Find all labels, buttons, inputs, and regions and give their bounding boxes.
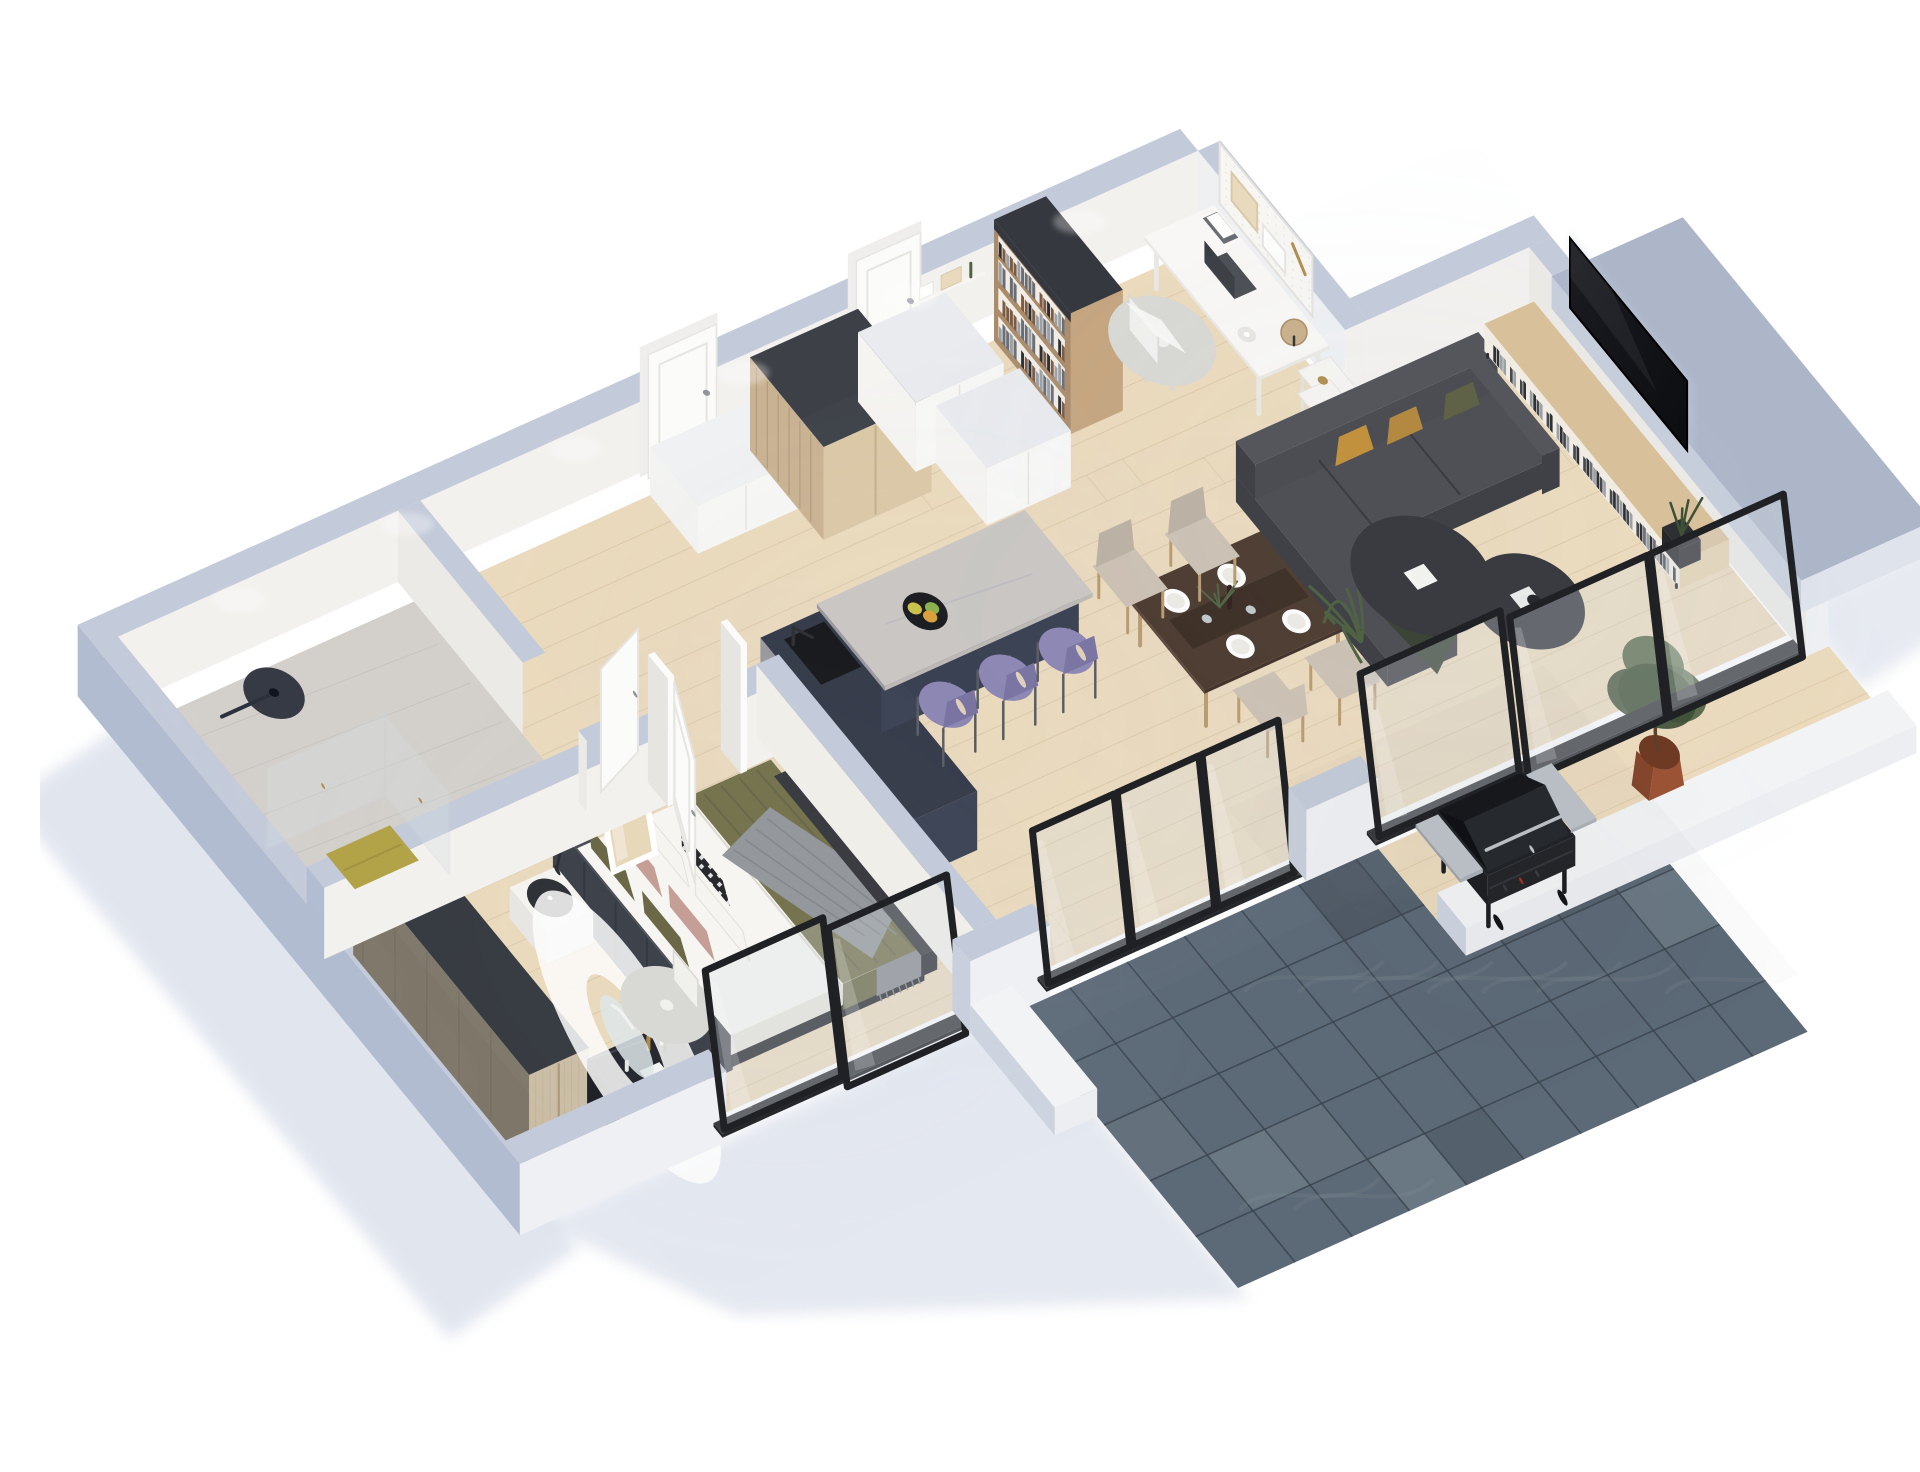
apartment-floor-plan: 3D isometric floor plan render of a one-… [40,16,1920,1456]
floor-plan-render [40,16,1920,1456]
